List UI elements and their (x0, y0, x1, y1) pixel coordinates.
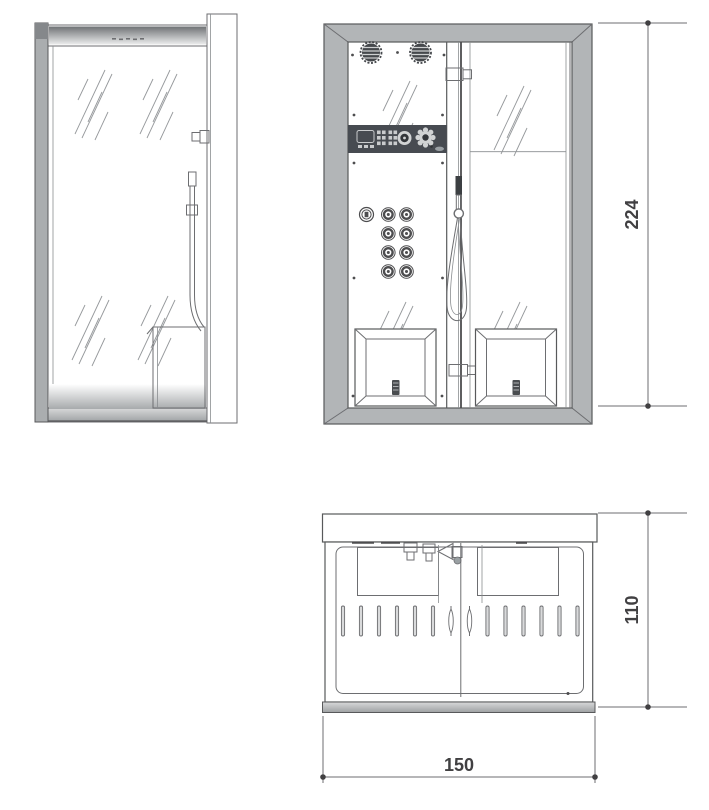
dim-depth-label: 110 (622, 595, 642, 624)
body-jet (382, 265, 396, 279)
dim-width-label: 150 (444, 755, 474, 775)
control-panel (348, 125, 447, 153)
body-jet (400, 208, 414, 222)
body-jet (382, 246, 396, 260)
brand-logo (435, 147, 444, 151)
control-knob (398, 131, 412, 145)
dimension-width: 150 (320, 716, 598, 783)
jet-selector-knob (360, 208, 374, 222)
front-view (324, 24, 592, 424)
display-buttons (358, 145, 374, 148)
body-jet (382, 208, 396, 222)
wall-profile-left (35, 23, 48, 422)
glass-reflection (138, 296, 175, 366)
shower-cabin-drawing: 224 110 150 (0, 0, 709, 810)
dimension-depth: 110 (598, 510, 687, 710)
hand-shower-side (187, 172, 205, 331)
wall-profile-cap (35, 23, 48, 39)
shower-tray (49, 384, 206, 409)
glass-reflection (140, 70, 177, 140)
body-jet (382, 227, 396, 241)
body-jet (400, 227, 414, 241)
drain-mark (567, 692, 570, 695)
base-profile (38, 408, 208, 422)
plan-view (323, 514, 598, 713)
body-jet (400, 265, 414, 279)
door-handle-side (192, 131, 209, 144)
glass-side-panel (48, 25, 207, 422)
glass-reflection (75, 70, 112, 140)
back-wall (323, 514, 598, 542)
technical-drawing-page: 224 110 150 (0, 0, 709, 810)
folding-seat (355, 329, 436, 406)
dim-height-label: 224 (622, 199, 642, 229)
equipment-column (207, 14, 237, 423)
cabin-body-plan (325, 542, 593, 702)
dimension-height: 224 (598, 20, 687, 409)
body-jet (400, 246, 414, 260)
front-sill (323, 702, 596, 713)
shower-holder (454, 209, 463, 218)
folding-seat (476, 329, 557, 406)
top-profile (49, 27, 206, 45)
side-view (35, 14, 237, 423)
glass-reflection (72, 296, 109, 366)
